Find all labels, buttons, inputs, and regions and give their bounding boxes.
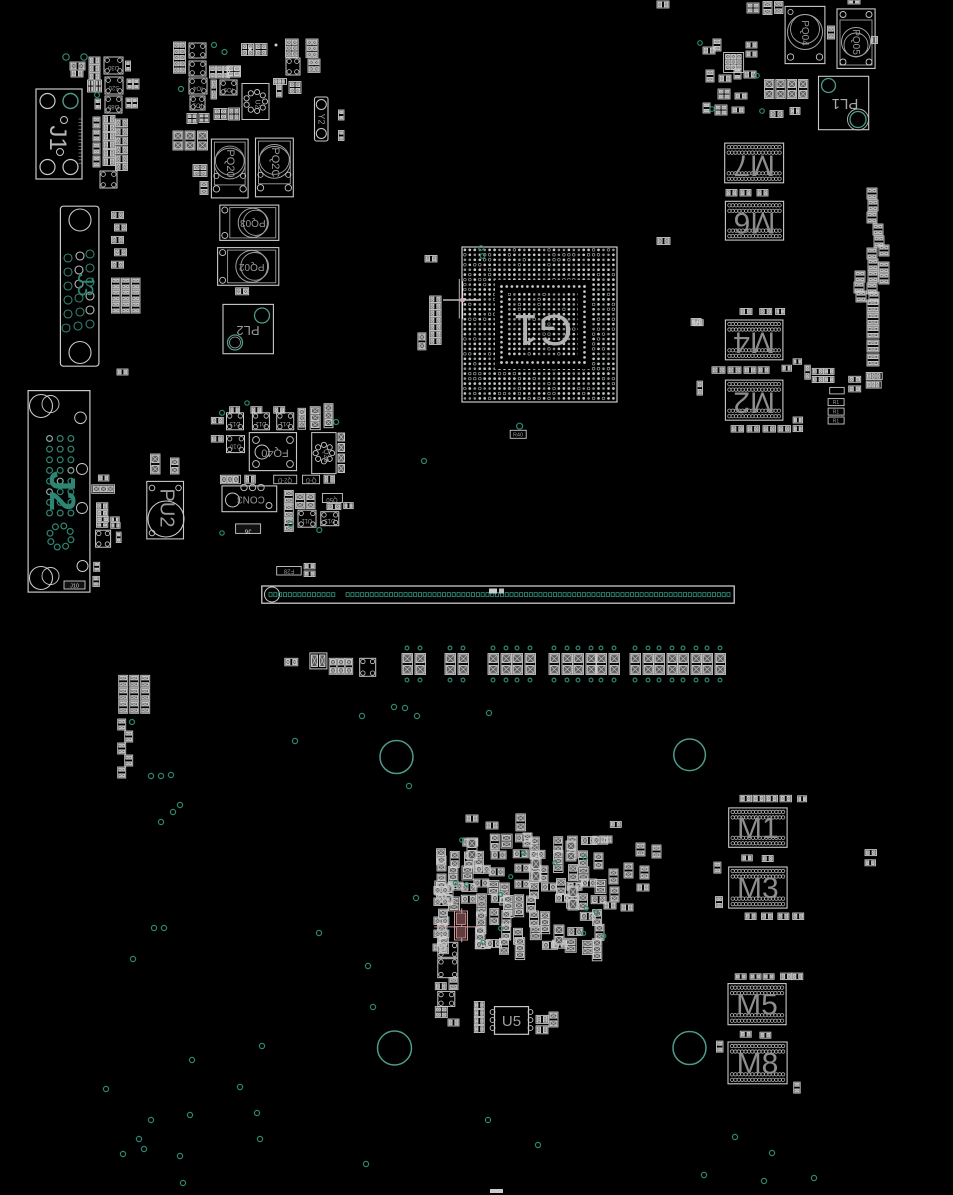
svg-text:Q2-D: Q2-D	[277, 477, 292, 483]
svg-text:M7: M7	[733, 148, 775, 181]
svg-text:M1: M1	[737, 812, 779, 845]
svg-text:FQ40: FQ40	[261, 447, 289, 459]
svg-text:U5: U5	[502, 1013, 521, 1030]
svg-text:IO9: IO9	[223, 86, 233, 92]
svg-text:PQ20: PQ20	[224, 149, 236, 177]
svg-text:M3: M3	[737, 872, 779, 905]
svg-text:PQ03: PQ03	[240, 217, 266, 228]
svg-text:Y2: Y2	[317, 113, 327, 124]
svg-text:IO4: IO4	[193, 85, 203, 91]
svg-text:Q-D: Q-D	[305, 477, 317, 483]
svg-text:D30: D30	[107, 64, 119, 70]
svg-text:CON3: CON3	[237, 494, 265, 505]
svg-text:Q30: Q30	[322, 449, 329, 462]
svg-text:PQ2C: PQ2C	[269, 147, 281, 177]
svg-text:PU2: PU2	[156, 489, 178, 528]
svg-text:J6: J6	[244, 528, 251, 535]
svg-text:M2: M2	[733, 386, 775, 419]
svg-text:S20: S20	[108, 84, 119, 90]
svg-text:D13: D13	[229, 420, 241, 426]
svg-text:J10: J10	[70, 584, 79, 590]
svg-text:M8: M8	[737, 1047, 779, 1080]
svg-text:PL2: PL2	[236, 323, 259, 338]
svg-text:J1: J1	[44, 125, 71, 150]
svg-text:U11: U11	[301, 517, 312, 523]
svg-text:D10: D10	[229, 443, 241, 449]
svg-text:PL1: PL1	[832, 95, 859, 112]
svg-text:D12: D12	[255, 420, 267, 426]
svg-text:PQ05: PQ05	[850, 29, 861, 55]
svg-text:R1: R1	[833, 410, 840, 416]
svg-text:PQ02: PQ02	[238, 261, 264, 272]
svg-text:D80: D80	[107, 103, 119, 109]
svg-text:R1: R1	[833, 400, 840, 406]
svg-text:J3: J3	[73, 273, 98, 296]
svg-text:J2: J2	[42, 471, 83, 511]
svg-text:PQ04: PQ04	[799, 20, 810, 46]
svg-text:Q50: Q50	[326, 496, 338, 502]
svg-text:R1: R1	[833, 419, 840, 425]
svg-text:U2: U2	[254, 100, 261, 109]
svg-text:IO1: IO1	[192, 102, 202, 108]
svg-text:F28: F28	[283, 568, 294, 574]
svg-text:R40: R40	[513, 433, 523, 439]
svg-text:M4: M4	[733, 325, 775, 358]
svg-text:D11: D11	[279, 420, 290, 426]
svg-text:D15: D15	[324, 517, 336, 523]
svg-text:M5: M5	[736, 989, 778, 1022]
svg-text:M6: M6	[734, 206, 776, 239]
svg-text:G1: G1	[514, 305, 573, 354]
